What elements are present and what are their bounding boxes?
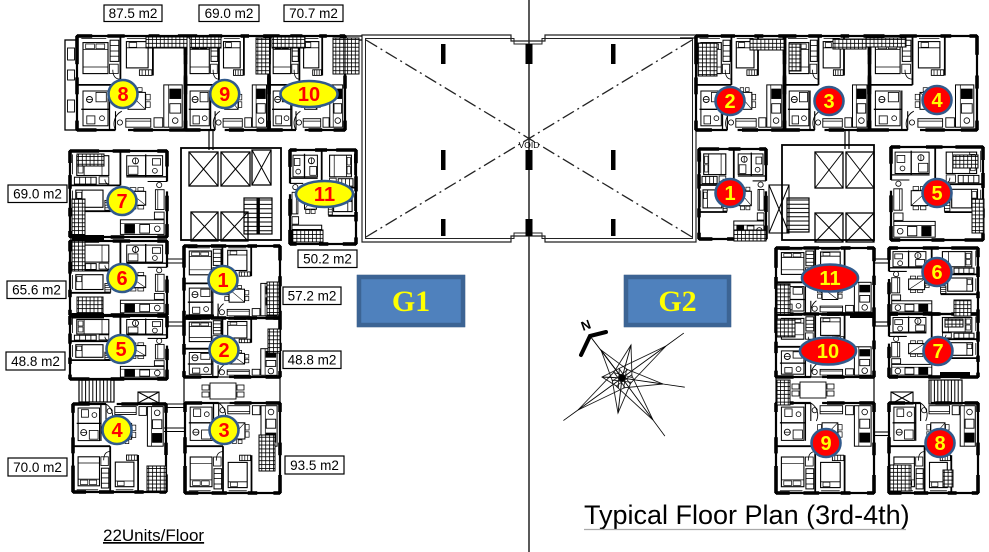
svg-text:5: 5 xyxy=(931,183,942,205)
svg-text:48.8 m2: 48.8 m2 xyxy=(11,354,60,369)
svg-text:22Units/Floor: 22Units/Floor xyxy=(103,526,204,545)
svg-text:65.6 m2: 65.6 m2 xyxy=(12,283,61,298)
svg-text:93.5 m2: 93.5 m2 xyxy=(290,458,339,473)
svg-text:4: 4 xyxy=(931,90,943,112)
svg-text:VOID: VOID xyxy=(519,140,540,150)
svg-text:7: 7 xyxy=(116,191,127,213)
svg-text:6: 6 xyxy=(931,262,942,284)
svg-text:9: 9 xyxy=(219,84,230,106)
svg-text:3: 3 xyxy=(823,91,834,113)
svg-text:1: 1 xyxy=(217,270,228,292)
svg-text:Typical Floor Plan (3rd-4th): Typical Floor Plan (3rd-4th) xyxy=(584,500,910,530)
svg-text:70.7 m2: 70.7 m2 xyxy=(289,6,338,21)
svg-text:8: 8 xyxy=(934,433,945,455)
svg-text:8: 8 xyxy=(117,84,128,106)
svg-text:10: 10 xyxy=(817,341,839,363)
svg-text:4: 4 xyxy=(111,420,123,442)
svg-text:87.5 m2: 87.5 m2 xyxy=(109,6,158,21)
svg-text:70.0 m2: 70.0 m2 xyxy=(13,460,62,475)
svg-text:69.0 m2: 69.0 m2 xyxy=(13,187,62,202)
svg-text:5: 5 xyxy=(115,339,126,361)
svg-text:48.8 m2: 48.8 m2 xyxy=(288,353,337,368)
svg-text:69.0 m2: 69.0 m2 xyxy=(205,6,254,21)
svg-text:2: 2 xyxy=(724,91,735,113)
svg-text:3: 3 xyxy=(218,420,229,442)
svg-text:G2: G2 xyxy=(658,285,696,318)
svg-text:57.2 m2: 57.2 m2 xyxy=(288,289,337,304)
svg-text:11: 11 xyxy=(819,268,840,290)
svg-text:G1: G1 xyxy=(392,285,430,318)
svg-text:2: 2 xyxy=(218,340,229,362)
svg-text:50.2 m2: 50.2 m2 xyxy=(303,252,352,267)
svg-text:6: 6 xyxy=(116,268,127,290)
svg-text:1: 1 xyxy=(724,183,735,205)
svg-text:10: 10 xyxy=(298,84,320,106)
svg-text:7: 7 xyxy=(932,341,943,363)
svg-text:9: 9 xyxy=(820,433,831,455)
svg-text:11: 11 xyxy=(314,184,335,206)
